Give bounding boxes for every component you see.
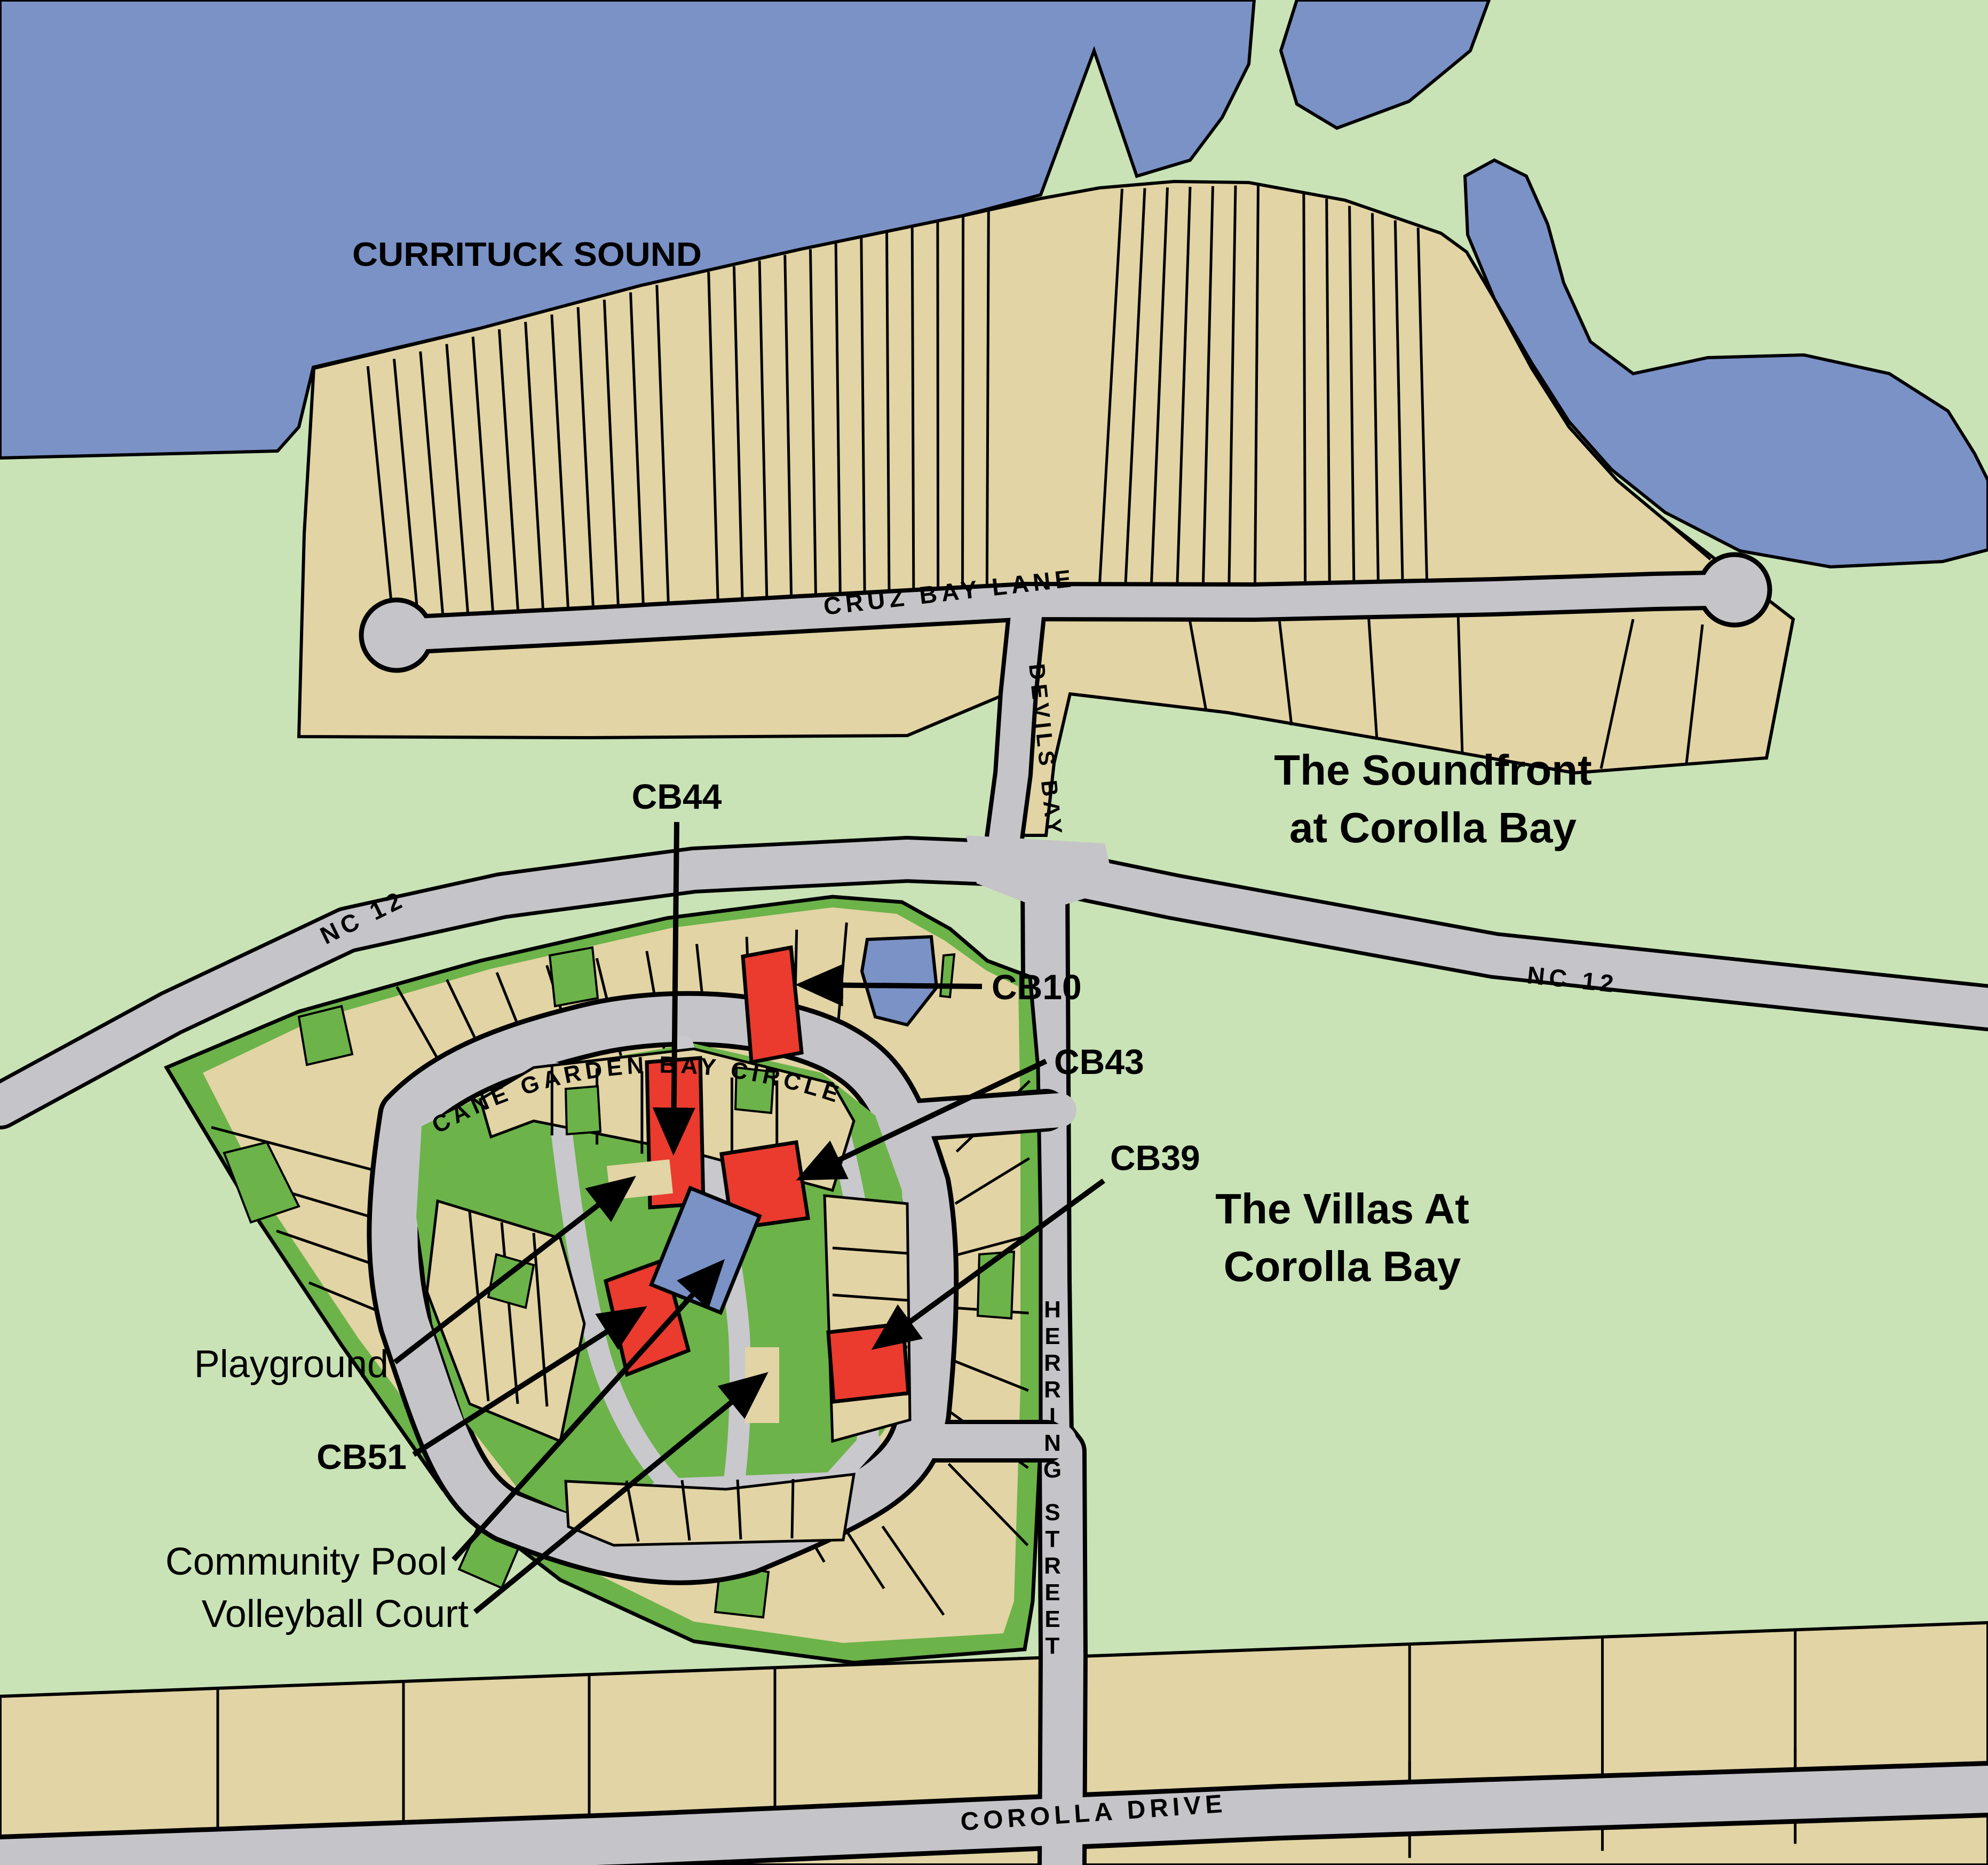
soundfront-label-line2: at Corolla Bay bbox=[1289, 804, 1577, 851]
plat-map: CURRITUCK SOUND The Soundfront at Coroll… bbox=[0, 0, 1988, 1865]
cul-de-sac-east bbox=[1704, 559, 1765, 621]
cb10-label: CB10 bbox=[992, 967, 1082, 1007]
soundfront-label-line1: The Soundfront bbox=[1274, 746, 1591, 794]
cb43-label: CB43 bbox=[1054, 1042, 1144, 1081]
playground-label: Playground bbox=[194, 1343, 389, 1386]
cul-de-sac-west bbox=[366, 604, 427, 666]
cb10-leader bbox=[803, 985, 982, 986]
cb39-label: CB39 bbox=[1110, 1138, 1200, 1178]
lot-cb10 bbox=[743, 947, 802, 1062]
volleyball-court-label: Volleyball Court bbox=[202, 1593, 469, 1635]
cb51-label: CB51 bbox=[316, 1437, 407, 1476]
villas-label-line2: Corolla Bay bbox=[1224, 1243, 1461, 1290]
cb44-label: CB44 bbox=[632, 777, 722, 816]
lot-cb39 bbox=[828, 1324, 908, 1402]
community-pool-label: Community Pool bbox=[165, 1540, 447, 1583]
herring-street-label: HERRINGSTREET bbox=[1043, 1297, 1066, 1659]
currituck-sound-label: CURRITUCK SOUND bbox=[352, 236, 702, 273]
cb44-leader bbox=[674, 822, 677, 1148]
villas-label-line1: The Villas At bbox=[1215, 1185, 1469, 1232]
